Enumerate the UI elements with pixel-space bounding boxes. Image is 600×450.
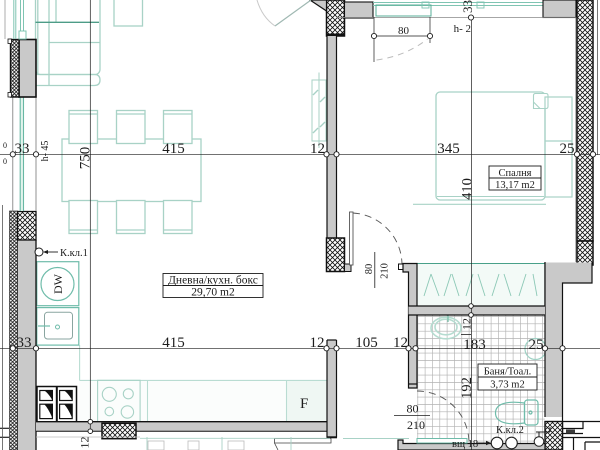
svg-text:Дневна/кухн. бокс: Дневна/кухн. бокс — [168, 275, 258, 287]
svg-text:105: 105 — [355, 335, 378, 351]
svg-text:183: 183 — [463, 337, 486, 353]
svg-text:25: 25 — [529, 337, 544, 353]
svg-text:К.кл.2: К.кл.2 — [496, 425, 524, 436]
svg-text:29,70 m2: 29,70 m2 — [191, 287, 235, 299]
svg-text:Баня/Тоал.: Баня/Тоал. — [484, 367, 532, 378]
svg-text:h- 45: h- 45 — [40, 141, 51, 162]
svg-text:DW: DW — [51, 273, 65, 294]
svg-text:0: 0 — [3, 141, 7, 150]
svg-text:80: 80 — [364, 264, 375, 275]
svg-text:12: 12 — [78, 437, 92, 449]
svg-text:410: 410 — [459, 178, 475, 200]
svg-text:12: 12 — [393, 335, 408, 351]
svg-text:Спалня: Спалня — [498, 168, 531, 179]
svg-text:12: 12 — [310, 335, 325, 351]
svg-text:вщ 18: вщ 18 — [452, 439, 478, 450]
svg-text:33: 33 — [460, 0, 475, 13]
svg-text:415: 415 — [162, 141, 185, 157]
svg-text:33: 33 — [15, 141, 30, 157]
svg-text:210: 210 — [380, 263, 391, 279]
svg-text:345: 345 — [437, 141, 460, 157]
svg-text:3,73 m2: 3,73 m2 — [490, 380, 524, 391]
svg-text:750: 750 — [77, 147, 93, 170]
svg-text:0: 0 — [3, 157, 7, 166]
svg-text:25: 25 — [560, 141, 575, 157]
svg-text:415: 415 — [162, 335, 185, 351]
svg-text:80: 80 — [398, 25, 410, 37]
svg-text:192: 192 — [459, 377, 475, 399]
svg-text:F: F — [300, 396, 308, 412]
svg-text:80: 80 — [407, 402, 419, 416]
svg-text:210: 210 — [407, 418, 425, 432]
svg-text:12: 12 — [460, 318, 474, 330]
svg-text:h- 2: h- 2 — [454, 23, 471, 35]
svg-text:К.кл.1: К.кл.1 — [60, 248, 88, 259]
svg-text:12: 12 — [310, 141, 325, 157]
svg-text:13,17 m2: 13,17 m2 — [495, 180, 535, 191]
svg-text:33: 33 — [17, 335, 32, 351]
